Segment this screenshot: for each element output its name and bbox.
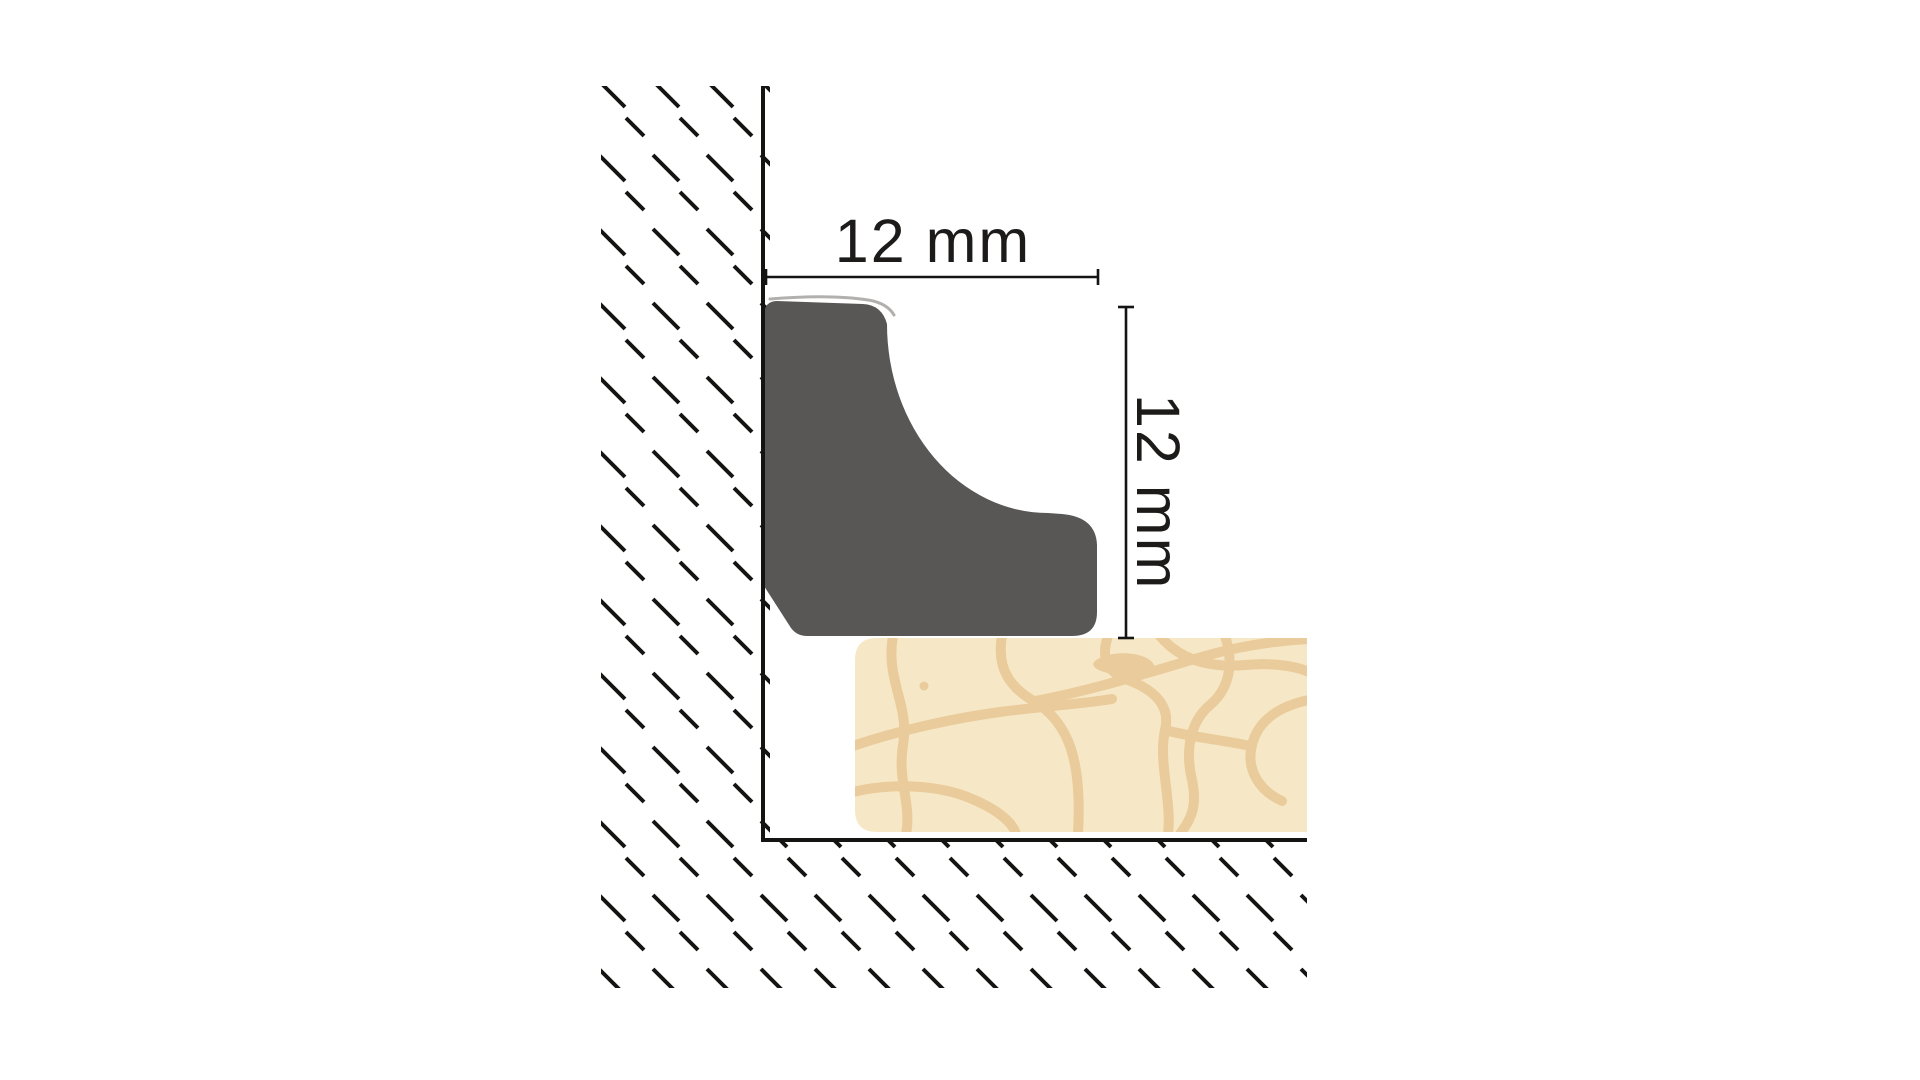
diagram-canvas: 12 mm 12 mm: [0, 0, 1920, 1080]
height-dimension-label: 12 mm: [1124, 394, 1192, 590]
floor-board: [853, 636, 1309, 834]
width-dimension-label: 12 mm: [835, 207, 1031, 275]
wall-hatch: [601, 86, 770, 988]
corner-installation-diagram: 12 mm 12 mm: [0, 0, 1920, 1080]
subfloor-hatch: [763, 842, 1307, 988]
